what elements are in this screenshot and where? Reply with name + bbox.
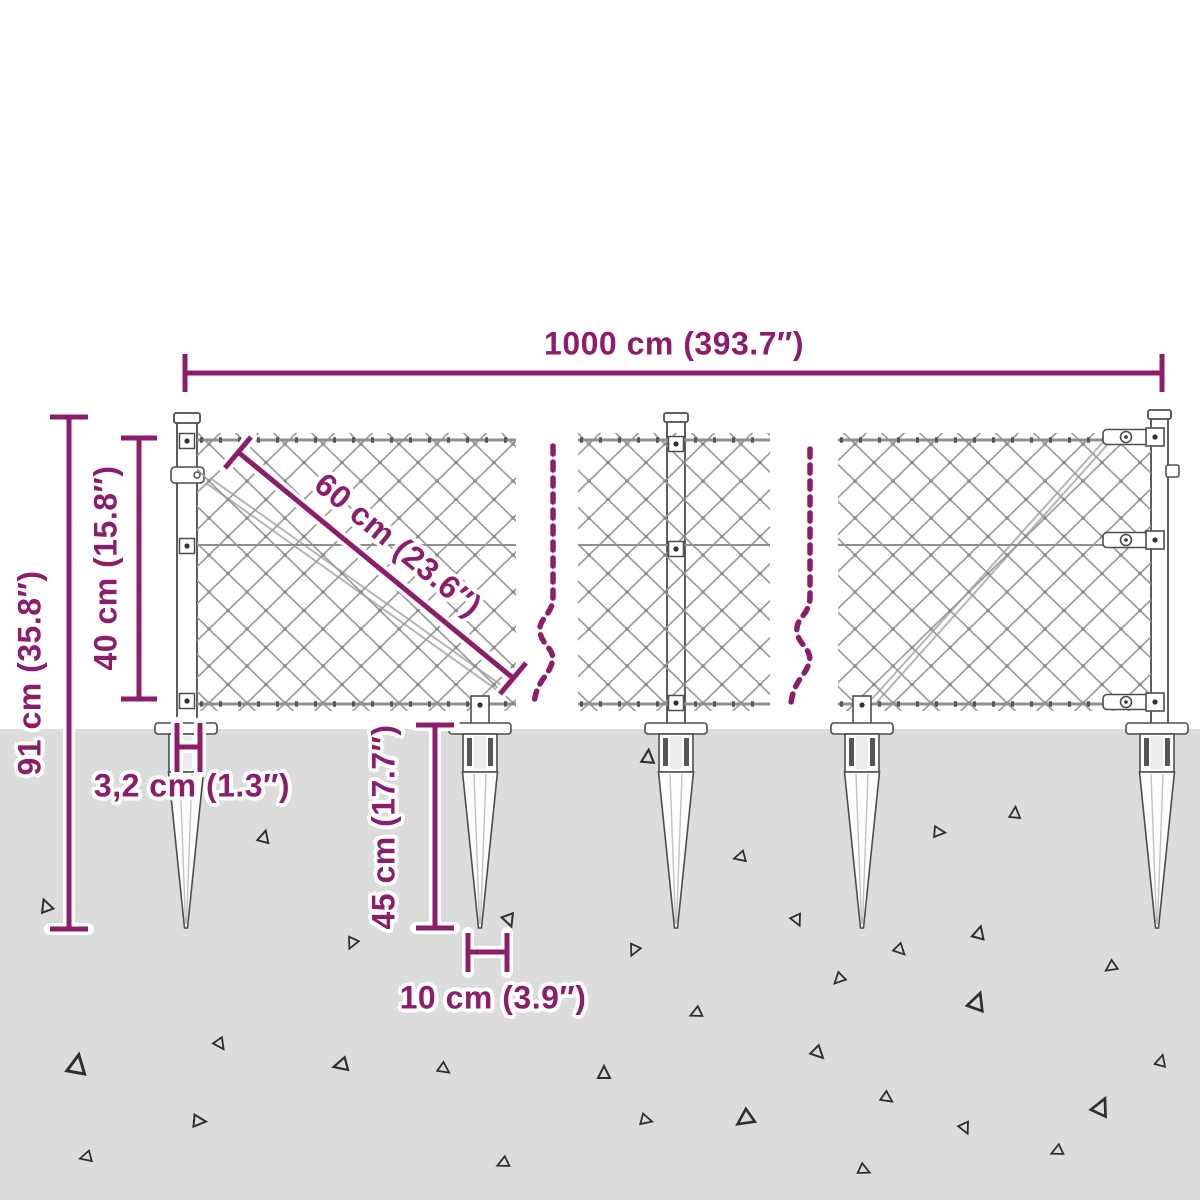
mesh-panel-1 xyxy=(197,433,516,711)
dimension-label-91cm: 91 cm (35.8″) xyxy=(12,570,49,775)
dimension-label-3-2cm: 3,2 cm (1.3″) xyxy=(94,768,290,805)
dim-line-40 xyxy=(121,438,157,699)
dimension-label-40cm: 40 cm (15.8″) xyxy=(88,465,125,670)
fence-dimension-diagram: 1000 cm (393.7″) 91 cm (35.8″) 40 cm (15… xyxy=(0,0,1200,1200)
diagram-canvas xyxy=(0,0,1200,1200)
mesh-panel-3 xyxy=(838,433,1151,711)
mesh-panel-2 xyxy=(578,433,770,711)
dimension-label-1000cm: 1000 cm (393.7″) xyxy=(544,326,804,363)
dimension-label-10cm: 10 cm (3.9″) xyxy=(400,980,587,1017)
dimension-label-45cm: 45 cm (17.7″) xyxy=(366,724,403,929)
